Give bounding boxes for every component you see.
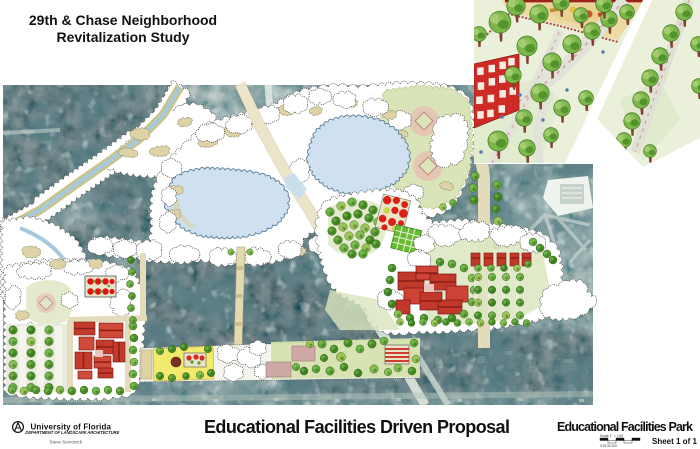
svg-text:Scale 1" = 100': Scale 1" = 100'	[600, 434, 624, 438]
svg-text:Educational Facilities Driven: Educational Facilities Driven Proposal	[204, 417, 510, 437]
svg-text:0 25 50 100: 0 25 50 100	[600, 444, 617, 448]
svg-text:Sheet 1 of 1: Sheet 1 of 1	[652, 437, 697, 446]
svg-text:Steve Semonich: Steve Semonich	[50, 440, 83, 445]
svg-text:29th & Chase Neighborhood: 29th & Chase Neighborhood	[29, 12, 217, 28]
svg-text:DEPARTMENT OF LANDSCAPE ARCHIT: DEPARTMENT OF LANDSCAPE ARCHITECTURE	[25, 430, 119, 435]
svg-text:Educational Facilities Park: Educational Facilities Park	[557, 420, 693, 434]
svg-text:Revitalization Study: Revitalization Study	[56, 29, 189, 45]
